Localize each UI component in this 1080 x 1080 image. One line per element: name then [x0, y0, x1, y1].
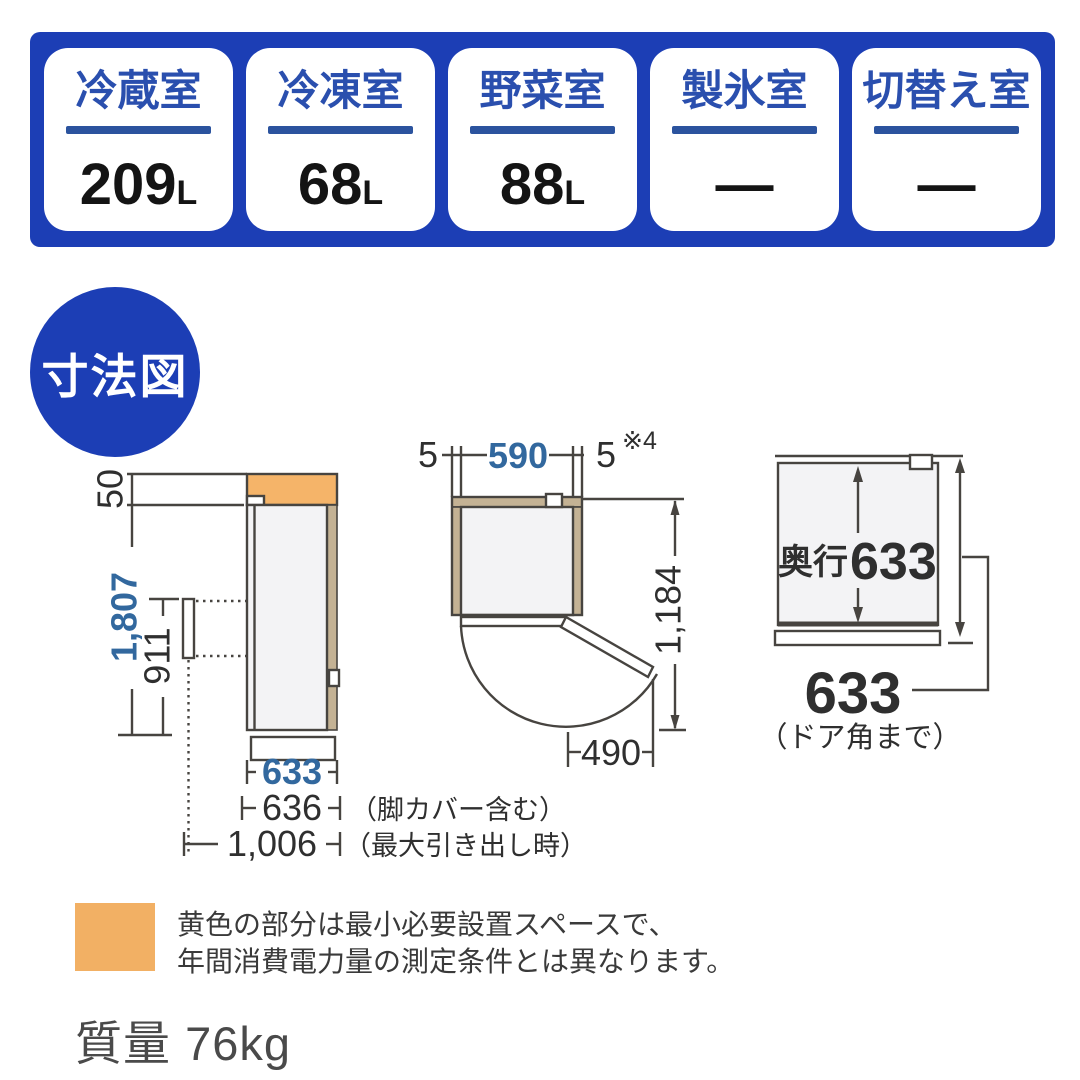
hinge-notch	[546, 494, 562, 507]
depth-value: 633	[850, 533, 937, 591]
dim-top-clearance: 50	[90, 469, 131, 509]
door-open	[561, 617, 653, 677]
weight-value: 76kg	[185, 1017, 291, 1070]
dim-drawer-height: 911	[137, 627, 178, 684]
right-clearance-strip	[573, 507, 582, 615]
hinge-notch	[910, 455, 932, 469]
fridge-body-top	[461, 507, 573, 615]
left-clearance-strip	[452, 507, 461, 615]
rear-notch	[329, 670, 339, 686]
dim-right-gap: 5	[596, 434, 616, 475]
legend-line2: 年間消費電力量の測定条件とは異なります。	[177, 943, 734, 980]
arrowhead-up	[671, 500, 680, 515]
fridge-body-side	[247, 505, 327, 730]
depth-view-drawing: 奥行 633 633 （ドア角まで）	[758, 455, 988, 754]
dim-door-open-depth: 1,184	[648, 565, 689, 655]
legend-text: 黄色の部分は最小必要設置スペースで、 年間消費電力量の測定条件とは異なります。	[177, 906, 734, 980]
door-swing-arc	[461, 626, 657, 727]
dim-depth-drawer-open: 1,006	[227, 823, 317, 864]
door-slab	[775, 631, 940, 645]
top-view-drawing: 5 590 5 ※4 1,184 490	[418, 427, 689, 773]
footnote-mark: ※4	[622, 427, 657, 455]
dim-width: 590	[488, 435, 548, 476]
note-to-door-corner: （ドア角まで）	[758, 721, 961, 754]
legend-color-swatch	[75, 903, 155, 971]
note-drawer-open: （最大引き出し時）	[344, 831, 587, 861]
dim-door-swing: 490	[581, 732, 641, 773]
door-top-notch	[247, 496, 264, 505]
door-closed	[461, 617, 566, 626]
arrowhead-down	[671, 715, 680, 730]
spec-sheet: 冷蔵室 209L 冷凍室 68L 野菜室 88L 製氷室 — 切替え室 — 寸法…	[0, 0, 1080, 1080]
dim-left-gap: 5	[418, 434, 438, 475]
weight-label: 質量	[75, 1017, 171, 1070]
depth-label: 奥行	[778, 543, 848, 582]
drawer-front-open	[183, 599, 194, 658]
dim-depth: 633	[262, 751, 322, 792]
weight-spec: 質量 76kg	[75, 1005, 291, 1074]
legend-line1: 黄色の部分は最小必要設置スペースで、	[177, 906, 734, 943]
arrowhead-down	[955, 622, 965, 637]
dim-to-door-corner: 633	[805, 661, 902, 726]
note-with-cover: （脚カバー含む）	[350, 795, 566, 825]
dim-depth-with-cover: 636	[262, 787, 322, 828]
